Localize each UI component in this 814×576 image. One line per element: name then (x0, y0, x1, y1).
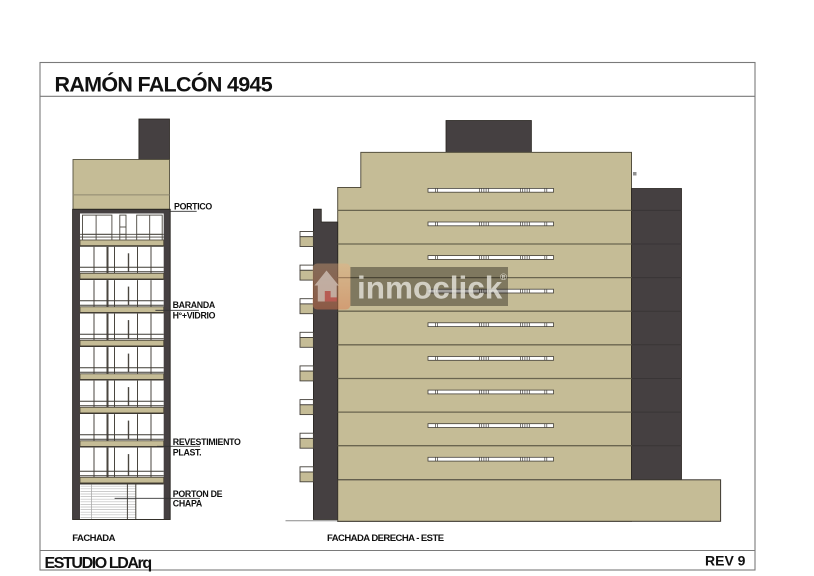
svg-text:FACHADA: FACHADA (72, 533, 115, 544)
svg-text:FACHADA DERECHA - ESTE: FACHADA DERECHA - ESTE (327, 533, 444, 544)
svg-text:REV 9: REV 9 (705, 553, 746, 569)
svg-text:RAMÓN FALCÓN 4945: RAMÓN FALCÓN 4945 (55, 72, 273, 97)
svg-text:inmoclick: inmoclick (357, 270, 503, 306)
svg-text:CHAPA: CHAPA (173, 499, 203, 509)
svg-text:®: ® (500, 272, 507, 283)
svg-text:REVESTIMIENTO: REVESTIMIENTO (173, 437, 241, 447)
svg-text:PORTON DE: PORTON DE (173, 489, 223, 499)
svg-text:BARANDA: BARANDA (173, 300, 216, 310)
svg-text:PORTICO: PORTICO (174, 201, 212, 211)
svg-text:ESTUDIO LDArq: ESTUDIO LDArq (45, 555, 152, 572)
svg-text:H°+VIDRIO: H°+VIDRIO (173, 310, 216, 320)
svg-text:PLAST.: PLAST. (173, 448, 202, 458)
